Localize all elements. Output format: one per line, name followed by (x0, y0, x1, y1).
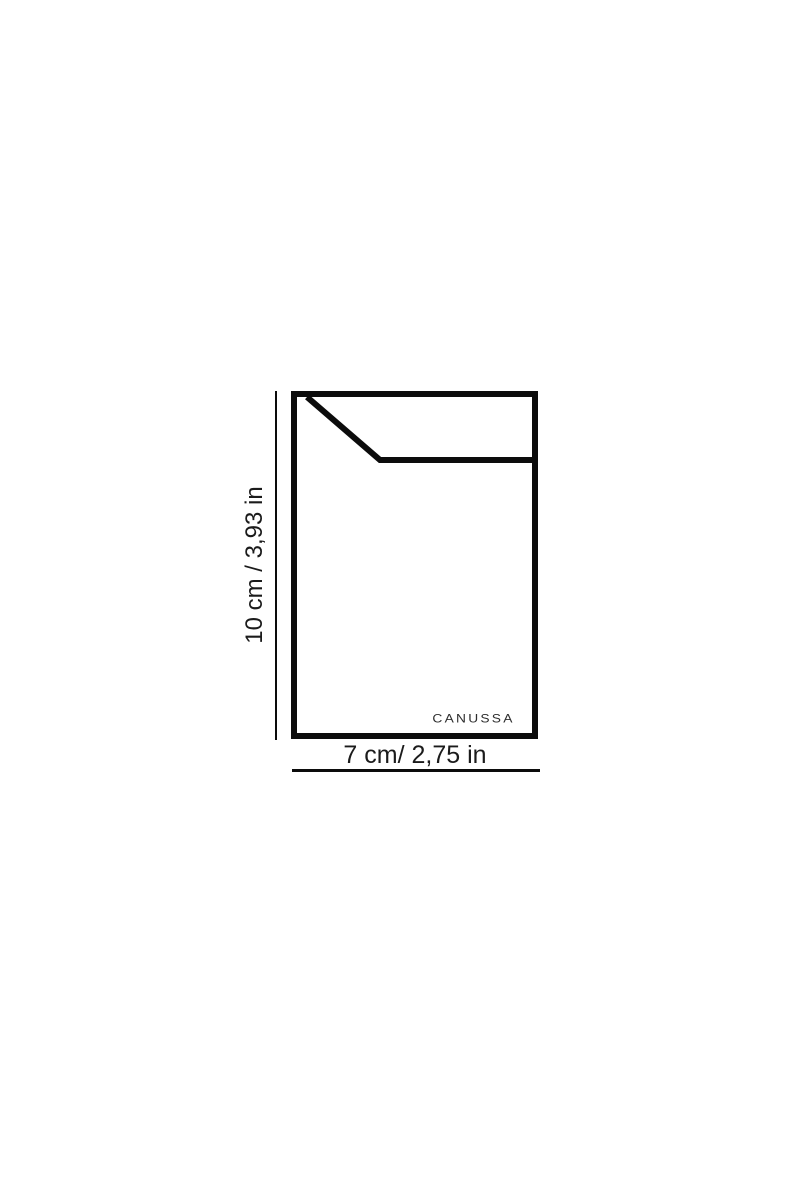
width-dimension-line (292, 769, 540, 772)
height-dimension-line (275, 391, 277, 740)
card-outline: CANUSSA (291, 391, 538, 739)
height-dimension-label: 10 cm / 3,93 in (240, 391, 270, 739)
width-dimension-label: 7 cm/ 2,75 in (291, 741, 539, 770)
flap-fold-line (297, 397, 532, 733)
brand-logo: CANUSSA (433, 712, 515, 725)
product-dimension-diagram: CANUSSA 10 cm / 3,93 in 7 cm/ 2,75 in (0, 0, 800, 1200)
